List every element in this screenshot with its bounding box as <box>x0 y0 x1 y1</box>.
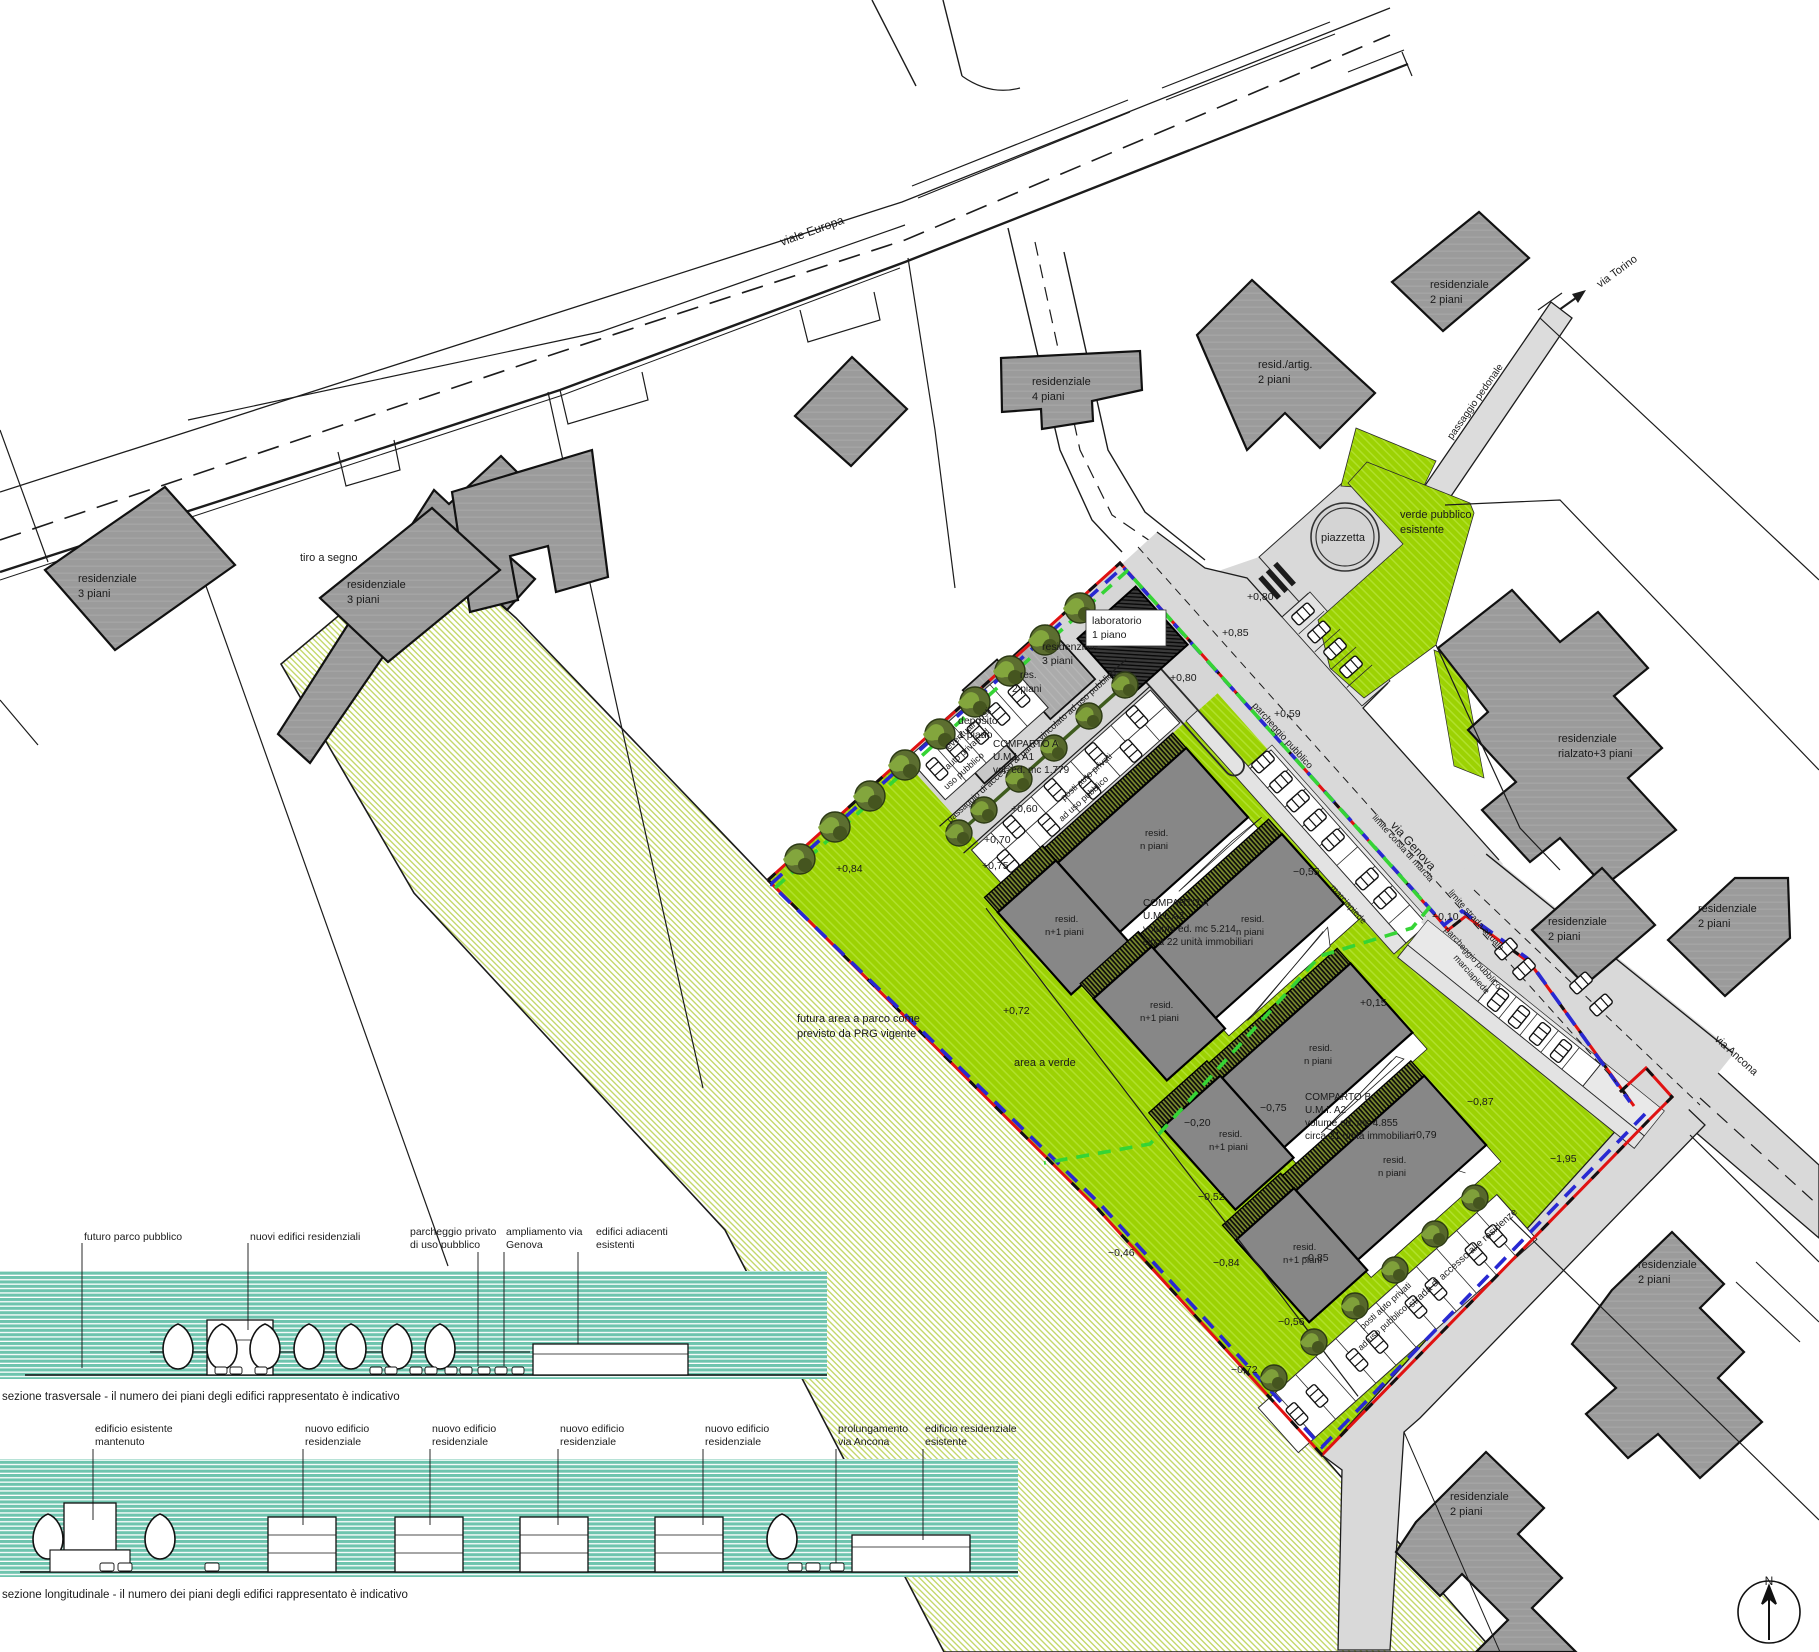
svg-text:−0,79: −0,79 <box>1410 1129 1437 1141</box>
svg-text:circa 22 unità immobiliari: circa 22 unità immobiliari <box>1143 937 1253 948</box>
svg-text:residenziale: residenziale <box>1558 733 1617 745</box>
svg-text:ampliamento via: ampliamento via <box>506 1226 583 1238</box>
svg-text:piazzetta: piazzetta <box>1321 532 1366 544</box>
svg-text:resid./artig.: resid./artig. <box>1258 359 1312 371</box>
svg-text:COMPARTO A: COMPARTO A <box>1143 898 1209 909</box>
svg-text:residenziale: residenziale <box>705 1436 761 1448</box>
svg-text:−0,75: −0,75 <box>1260 1102 1287 1114</box>
svg-text:+0,59: +0,59 <box>1274 708 1301 720</box>
svg-text:+0,70: +0,70 <box>984 834 1011 846</box>
svg-text:−0,72: −0,72 <box>1231 1364 1258 1376</box>
svg-text:residenziale: residenziale <box>1032 376 1091 388</box>
svg-text:resid.: resid. <box>1383 1155 1406 1166</box>
svg-text:nuovo edificio: nuovo edificio <box>305 1423 369 1435</box>
svg-text:Genova: Genova <box>506 1239 543 1251</box>
svg-text:parcheggio privato: parcheggio privato <box>410 1226 497 1238</box>
svg-text:residenziale: residenziale <box>1698 903 1757 915</box>
svg-text:esistenti: esistenti <box>596 1239 635 1251</box>
svg-text:residenziale: residenziale <box>560 1436 616 1448</box>
svg-text:−0,52: −0,52 <box>1198 1191 1225 1203</box>
svg-text:resid.: resid. <box>1219 1129 1242 1140</box>
svg-text:edificio esistente: edificio esistente <box>95 1423 173 1435</box>
svg-text:resid.: resid. <box>1055 914 1078 925</box>
svg-text:nuovo edificio: nuovo edificio <box>432 1423 496 1435</box>
svg-text:4 piani: 4 piani <box>1032 391 1064 403</box>
svg-text:−0,10: −0,10 <box>1432 911 1459 923</box>
svg-text:−0,20: −0,20 <box>1184 1117 1211 1129</box>
svg-text:2 piani: 2 piani <box>1258 374 1290 386</box>
svg-text:residenziale: residenziale <box>78 573 137 585</box>
svg-text:N: N <box>1765 1574 1774 1588</box>
svg-text:−0,85: −0,85 <box>1302 1252 1329 1264</box>
svg-text:2 piani: 2 piani <box>1012 684 1041 695</box>
svg-text:COMPARTO B: COMPARTO B <box>1305 1092 1371 1103</box>
svg-text:verde pubblico: verde pubblico <box>1400 509 1472 521</box>
svg-text:residenziale: residenziale <box>1430 279 1489 291</box>
svg-text:previsto da PRG vigente: previsto da PRG vigente <box>797 1028 916 1040</box>
svg-text:+0,15: +0,15 <box>1360 997 1387 1009</box>
svg-text:+0,80: +0,80 <box>1247 591 1274 603</box>
svg-text:area a verde: area a verde <box>1014 1057 1076 1069</box>
svg-text:residenziale: residenziale <box>1638 1259 1697 1271</box>
svg-text:resid.: resid. <box>1150 1000 1173 1011</box>
svg-text:rialzato+3 piani: rialzato+3 piani <box>1558 748 1632 760</box>
svg-text:volume ed. mc 4.855: volume ed. mc 4.855 <box>1305 1118 1398 1129</box>
svg-text:sezione trasversale - il numer: sezione trasversale - il numero dei pian… <box>2 1391 400 1403</box>
svg-text:esistente: esistente <box>1400 524 1444 536</box>
svg-text:futura area a parco come: futura area a parco come <box>797 1013 920 1025</box>
svg-text:3 piani: 3 piani <box>1042 655 1073 667</box>
svg-text:−0,46: −0,46 <box>1108 1247 1135 1259</box>
svg-text:2 piani: 2 piani <box>1638 1274 1670 1286</box>
svg-text:+0,72: +0,72 <box>1003 1005 1030 1017</box>
svg-text:resid.: resid. <box>1145 828 1168 839</box>
svg-text:sezione longitudinale - il num: sezione longitudinale - il numero dei pi… <box>2 1589 408 1601</box>
svg-text:−1,95: −1,95 <box>1550 1153 1577 1165</box>
svg-text:−0,84: −0,84 <box>1213 1257 1240 1269</box>
svg-text:residenziale: residenziale <box>1548 916 1607 928</box>
svg-text:edifici adiacenti: edifici adiacenti <box>596 1226 668 1238</box>
svg-text:1 piano: 1 piano <box>1092 629 1127 641</box>
svg-text:U.M.I. A2: U.M.I. A2 <box>1305 1105 1347 1116</box>
svg-text:residenziale: residenziale <box>347 579 406 591</box>
svg-text:2 piani: 2 piani <box>1548 931 1580 943</box>
svg-text:+0,80: +0,80 <box>1170 672 1197 684</box>
svg-text:3 piani: 3 piani <box>347 594 379 606</box>
svg-text:n piani: n piani <box>1140 841 1168 852</box>
svg-text:−0,55: −0,55 <box>1293 866 1320 878</box>
svg-text:nuovi edifici residenziali: nuovi edifici residenziali <box>250 1231 360 1243</box>
svg-text:−0,87: −0,87 <box>1467 1096 1494 1108</box>
svg-text:2 piani: 2 piani <box>1698 918 1730 930</box>
svg-text:−0,56: −0,56 <box>1278 1316 1305 1328</box>
svg-text:tiro a segno: tiro a segno <box>300 552 357 564</box>
svg-text:circa 21 unità immobiliari: circa 21 unità immobiliari <box>1305 1131 1415 1142</box>
svg-text:+0,84: +0,84 <box>836 863 863 875</box>
svg-text:via Ancona: via Ancona <box>838 1436 890 1448</box>
svg-text:n piani: n piani <box>1304 1056 1332 1067</box>
svg-text:prolungamento: prolungamento <box>838 1423 908 1435</box>
svg-text:2 piani: 2 piani <box>1450 1506 1482 1518</box>
svg-text:n+1 piani: n+1 piani <box>1140 1013 1179 1024</box>
svg-text:resid.: resid. <box>1309 1043 1332 1054</box>
svg-text:n+1 piani: n+1 piani <box>1045 927 1084 938</box>
svg-text:mantenuto: mantenuto <box>95 1436 145 1448</box>
svg-text:volume ed. mc 5.214: volume ed. mc 5.214 <box>1143 924 1236 935</box>
svg-text:edificio residenziale: edificio residenziale <box>925 1423 1017 1435</box>
svg-text:nuovo edificio: nuovo edificio <box>560 1423 624 1435</box>
svg-text:futuro parco pubblico: futuro parco pubblico <box>84 1231 182 1243</box>
svg-text:esistente: esistente <box>925 1436 967 1448</box>
svg-text:resid.: resid. <box>1241 914 1264 925</box>
svg-text:residenziale: residenziale <box>305 1436 361 1448</box>
svg-text:n piani: n piani <box>1236 927 1264 938</box>
svg-text:n+1 piani: n+1 piani <box>1209 1142 1248 1153</box>
svg-text:n piani: n piani <box>1378 1168 1406 1179</box>
svg-text:res.: res. <box>1020 670 1037 681</box>
svg-text:U.M.I. A2: U.M.I. A2 <box>1143 911 1185 922</box>
svg-text:3 piani: 3 piani <box>78 588 110 600</box>
svg-text:di uso pubblico: di uso pubblico <box>410 1239 480 1251</box>
svg-text:laboratorio: laboratorio <box>1092 615 1142 627</box>
svg-text:+0,85: +0,85 <box>1222 627 1249 639</box>
svg-text:2 piani: 2 piani <box>1430 294 1462 306</box>
svg-text:+0,60: +0,60 <box>1011 803 1038 815</box>
svg-text:residenziale: residenziale <box>1450 1491 1509 1503</box>
svg-text:nuovo edificio: nuovo edificio <box>705 1423 769 1435</box>
svg-text:+0,75: +0,75 <box>982 860 1009 872</box>
svg-text:residenziale: residenziale <box>432 1436 488 1448</box>
